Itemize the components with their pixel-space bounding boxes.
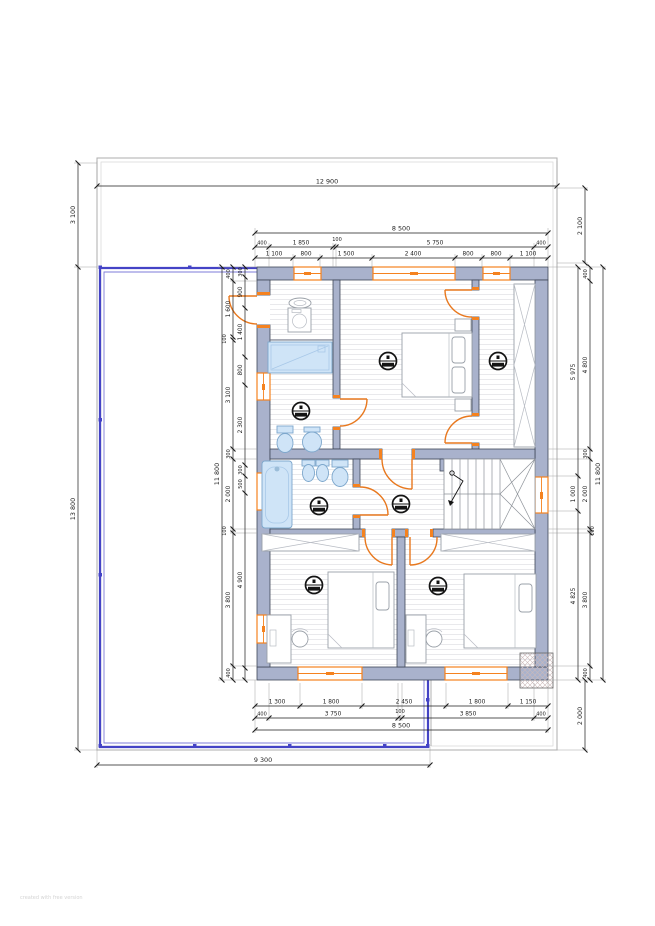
dim-label: 1 100	[520, 252, 537, 258]
dim-label: 2 100	[576, 217, 584, 235]
dim-label: 2 000	[226, 485, 232, 502]
dim-label: 500	[238, 479, 244, 489]
room-tag	[380, 353, 397, 370]
dim-label: 2 000	[583, 485, 589, 502]
room-tag	[293, 403, 310, 420]
dim-label: 400	[226, 269, 232, 279]
dim-label: 800	[462, 252, 473, 258]
wardrobe	[262, 534, 359, 551]
wardrobe	[514, 284, 535, 447]
room-tag	[430, 578, 447, 595]
dim-label: 11 800	[594, 463, 602, 485]
dim-label: 400	[536, 241, 546, 247]
dim-label: 400	[257, 241, 267, 247]
dim-label: 3 100	[69, 206, 77, 224]
room-tag	[306, 577, 323, 594]
dim-label: 1 800	[323, 700, 340, 706]
dim-label: 4 900	[238, 571, 244, 588]
dim-label: 4 825	[571, 587, 577, 604]
dim-label: 3 850	[460, 712, 477, 718]
floor-plan-sheet: 12 900 8 500 400 1 850 100 5 750 400 1 1…	[0, 0, 655, 926]
dim-label: 1 400	[238, 323, 244, 340]
dim-label: 400	[226, 668, 232, 678]
window	[373, 267, 455, 280]
dim-label: 300	[238, 465, 244, 475]
dim-label: 9 300	[254, 756, 272, 764]
dim-label: 3 750	[325, 712, 342, 718]
dim-label: 1 600	[226, 300, 232, 317]
sink	[303, 427, 322, 452]
dim-label: 100	[222, 334, 228, 344]
wardrobe	[441, 534, 535, 551]
dim-label: 11 800	[213, 463, 221, 485]
window	[257, 373, 270, 400]
dim-label: 800	[490, 252, 501, 258]
dim-label: 3 800	[226, 591, 232, 608]
dim-label: 2 450	[396, 700, 413, 706]
dim-label: 400	[536, 712, 546, 718]
dim-label: 5 975	[571, 363, 577, 380]
dim-label: 1 150	[520, 700, 537, 706]
dim-label: 800	[238, 364, 244, 375]
desk	[267, 615, 291, 663]
bed-single	[464, 574, 536, 648]
dim-label: 8 500	[392, 722, 410, 730]
dim-label: 1 100	[266, 252, 283, 258]
desk	[406, 615, 426, 663]
dim-label: 8 500	[392, 225, 410, 233]
dim-label: 800	[300, 252, 311, 258]
toilet	[332, 460, 348, 487]
dim-label: 900	[238, 286, 244, 297]
dim-label: 100	[222, 526, 228, 536]
watermark: created with free version	[20, 895, 83, 901]
sink	[302, 460, 315, 482]
dim-label: 400	[583, 269, 589, 279]
dim-label: 4 800	[583, 356, 589, 373]
dim-label: 2 000	[576, 707, 584, 725]
dim-label: 12 900	[316, 178, 338, 186]
dim-label: 2 400	[405, 252, 422, 258]
window	[483, 267, 510, 280]
dim-label: 1 000	[571, 485, 577, 502]
dim-label: 1 800	[469, 700, 486, 706]
stairs	[444, 459, 535, 529]
dim-label: 5 750	[427, 241, 444, 247]
sink	[316, 460, 329, 482]
window	[294, 267, 321, 280]
room-tag	[490, 353, 507, 370]
window	[445, 667, 507, 680]
window	[298, 667, 362, 680]
bed-double	[402, 319, 472, 411]
dim-label: 1 850	[293, 241, 310, 247]
dim-label: 3 800	[583, 591, 589, 608]
boiler	[289, 298, 311, 308]
shower	[268, 342, 332, 373]
dim-label: 100	[332, 237, 342, 243]
dim-label: 300	[238, 267, 244, 277]
dim-label: 3 100	[226, 386, 232, 403]
dim-label: 13 800	[69, 498, 77, 520]
room-tag	[393, 496, 410, 513]
dim-label: 100	[590, 526, 596, 536]
dim-label: 300	[583, 449, 589, 459]
dim-label: 1 500	[338, 252, 355, 258]
room-tag	[311, 498, 328, 515]
door-exterior	[229, 292, 270, 328]
washing-machine	[288, 308, 311, 332]
bed-single	[328, 572, 394, 648]
dim-label: 1 300	[269, 700, 286, 706]
dim-label: 100	[395, 709, 405, 715]
floor-plan-drawing: 12 900 8 500 400 1 850 100 5 750 400 1 1…	[0, 0, 655, 926]
dim-label: 2 300	[238, 416, 244, 433]
toilet	[277, 426, 293, 453]
dim-label: 400	[257, 712, 267, 718]
dim-label: 300	[226, 449, 232, 459]
bathtub	[262, 461, 292, 528]
window	[535, 477, 548, 513]
dim-label: 400	[583, 668, 589, 678]
